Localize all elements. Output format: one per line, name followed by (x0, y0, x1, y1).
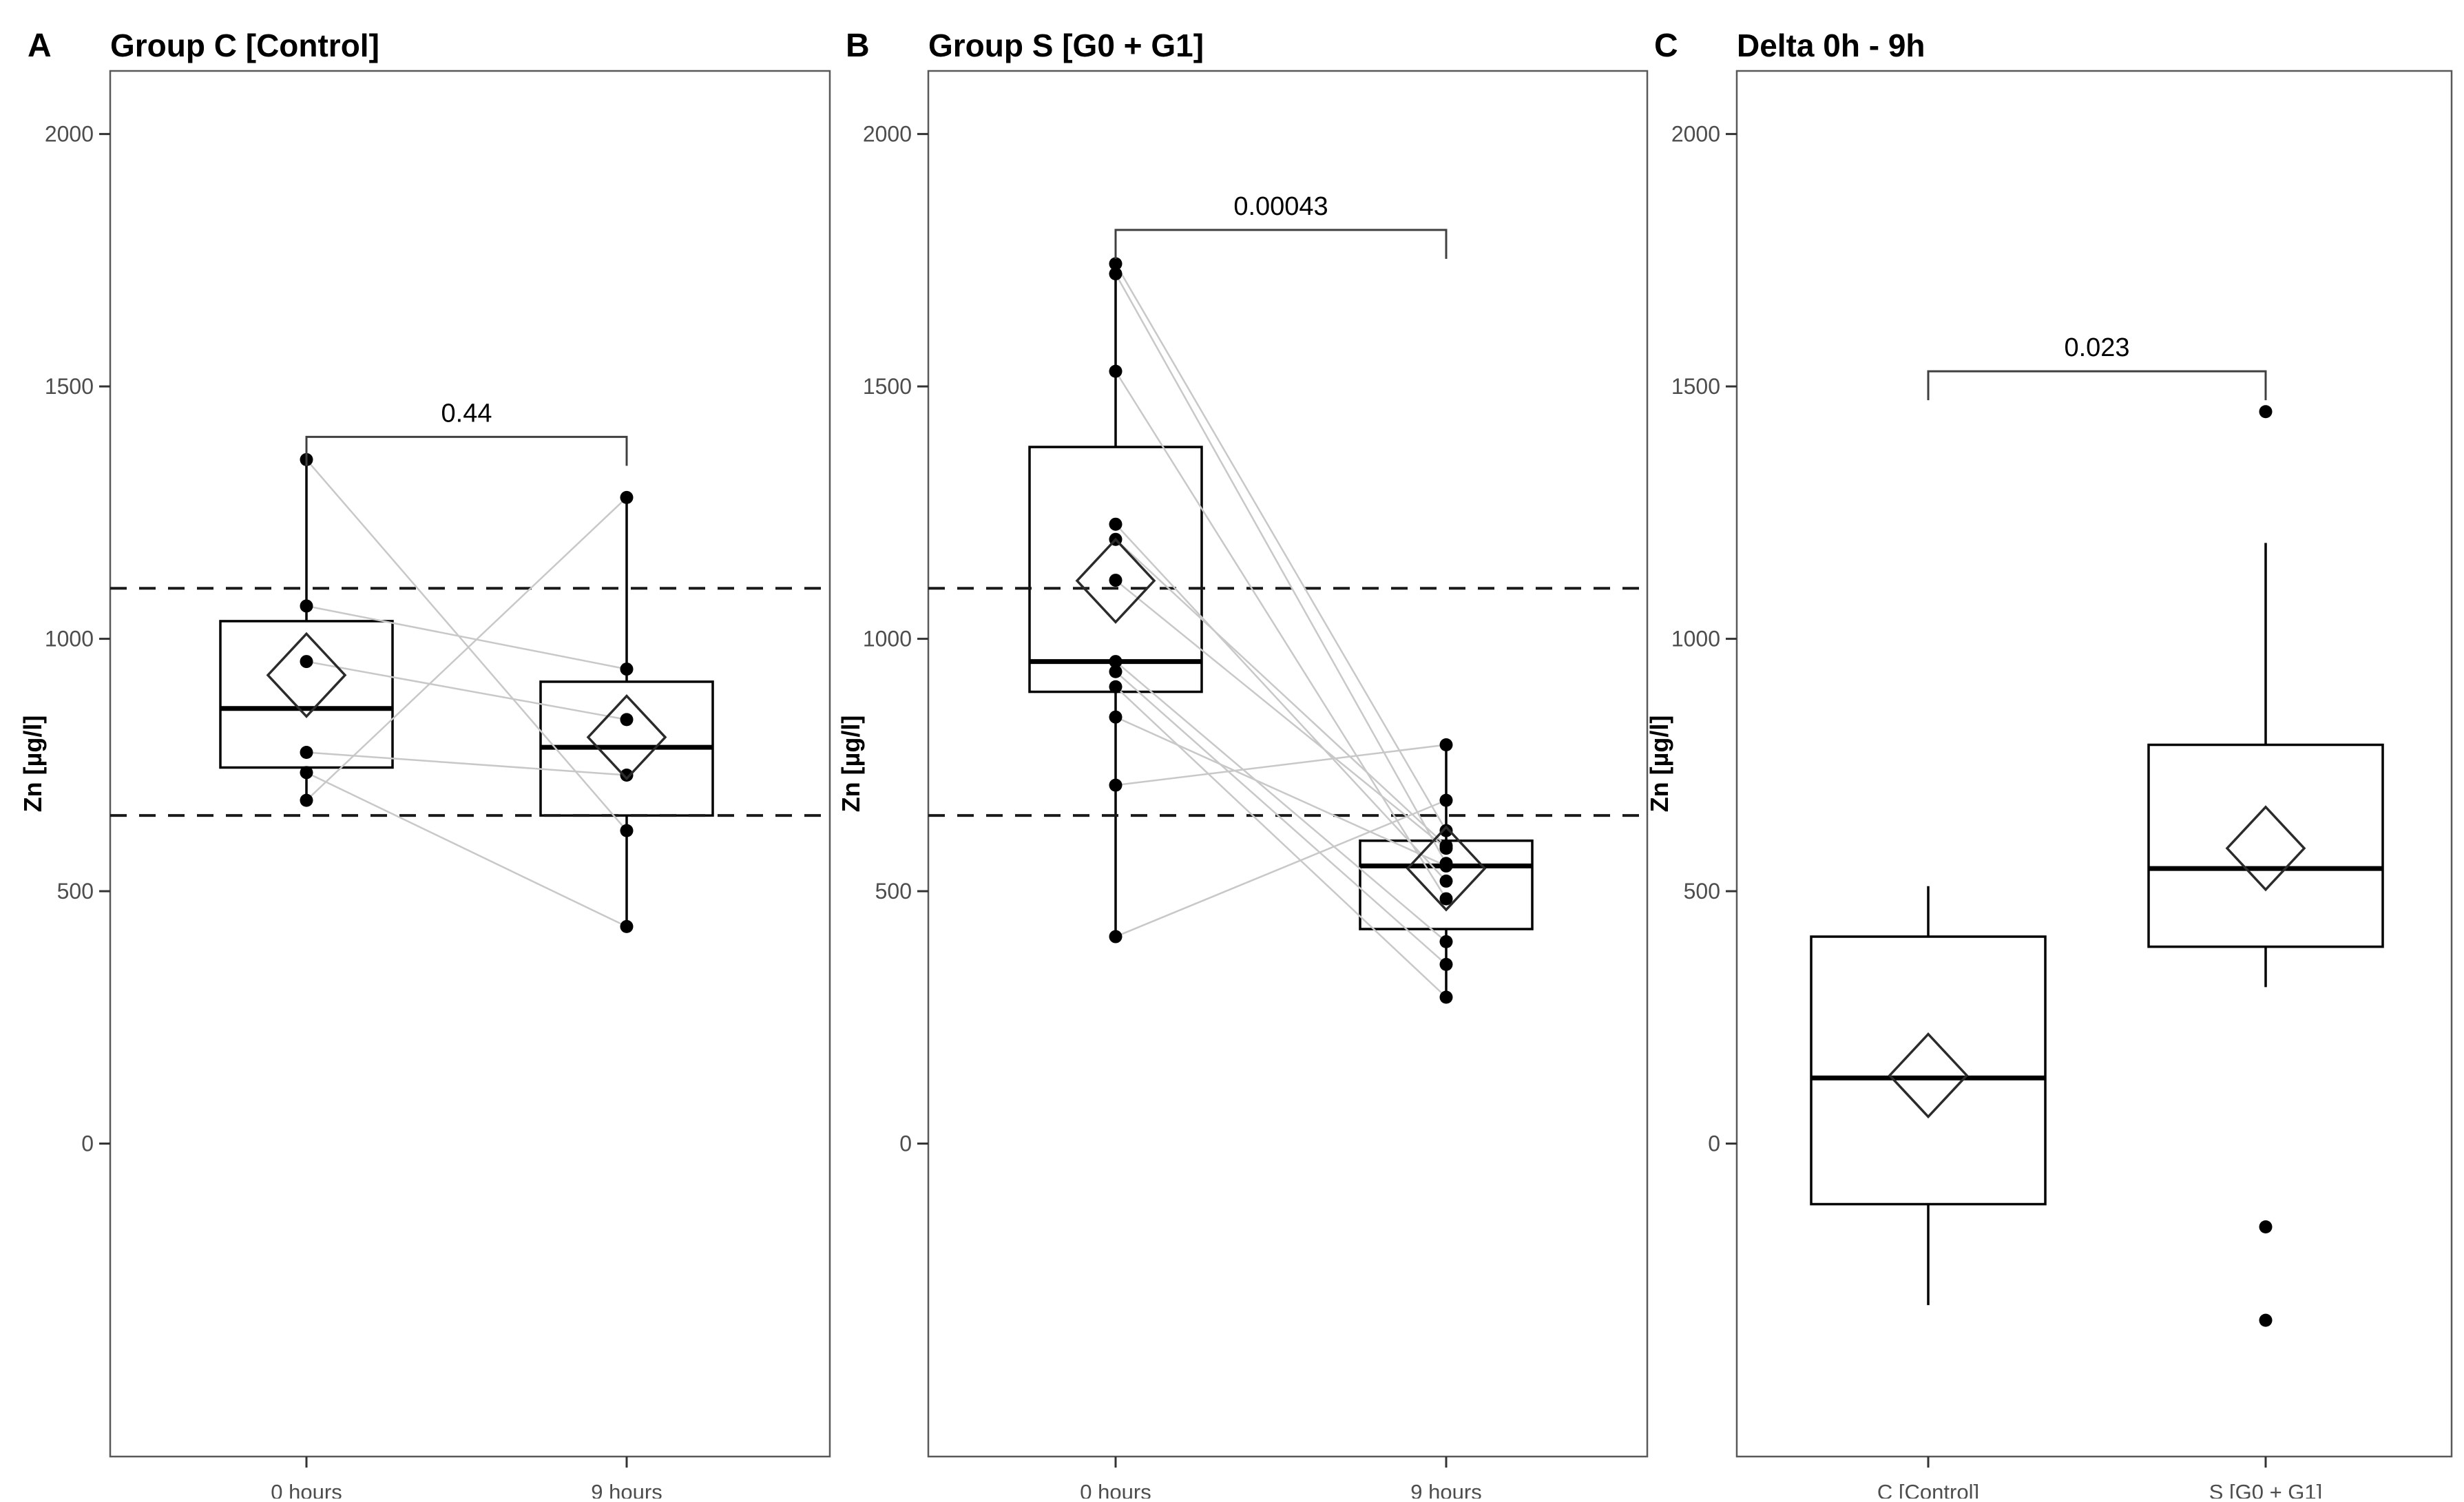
y-tick-label: 2000 (1671, 122, 1720, 147)
data-point (1109, 665, 1123, 678)
x-tick-label: 9 hours (1410, 1480, 1481, 1499)
panel-C: 0500100015002000Zn [µg/l]CDelta 0h - 9h0… (1645, 28, 2452, 1499)
y-tick-label: 1500 (45, 374, 94, 399)
data-point (620, 713, 634, 726)
x-tick-label: C [Control] (1877, 1480, 1979, 1499)
panel-letter: C (1654, 28, 1678, 64)
y-tick-label: 1000 (45, 627, 94, 651)
panel-title: Group S [G0 + G1] (928, 28, 1204, 63)
data-point (1440, 794, 1453, 807)
y-tick-label: 1500 (863, 374, 912, 399)
y-tick-label: 1500 (1671, 374, 1720, 399)
data-point (620, 663, 634, 676)
data-point (1109, 518, 1123, 531)
box (1811, 937, 2045, 1204)
y-tick-label: 0 (81, 1131, 94, 1156)
pvalue-label: 0.44 (441, 399, 492, 428)
data-point (1109, 930, 1123, 943)
data-point (1440, 990, 1453, 1003)
data-point (300, 746, 313, 759)
data-point (1109, 711, 1123, 724)
panel-A: 0500100015002000Zn [µg/l]AGroup C [Contr… (19, 28, 830, 1499)
data-point (620, 920, 634, 933)
zinc-boxplot-figure: 0500100015002000Zn [µg/l]AGroup C [Contr… (0, 0, 2464, 1499)
y-axis-title: Zn [µg/l] (19, 716, 47, 813)
data-point (1440, 842, 1453, 855)
data-point (1440, 958, 1453, 971)
data-point (1109, 365, 1123, 378)
panel-letter: B (846, 28, 870, 64)
data-point (1440, 875, 1453, 888)
data-point (1440, 859, 1453, 873)
panel-title: Delta 0h - 9h (1737, 28, 1925, 63)
x-tick-label: 0 hours (271, 1480, 342, 1499)
data-point (1109, 574, 1123, 587)
data-point (1440, 738, 1453, 751)
panel-title: Group C [Control] (110, 28, 379, 63)
panel-letter: A (28, 28, 52, 64)
outlier-point (2259, 1220, 2273, 1233)
data-point (1109, 779, 1123, 792)
data-point (620, 491, 634, 504)
pvalue-label: 0.00043 (1233, 192, 1328, 221)
data-point (1440, 935, 1453, 948)
data-point (300, 766, 313, 779)
y-tick-label: 500 (57, 879, 94, 904)
box (2149, 745, 2383, 947)
x-tick-label: S [G0 + G1] (2209, 1480, 2323, 1499)
data-point (300, 599, 313, 612)
y-tick-label: 0 (899, 1131, 912, 1156)
data-point (300, 655, 313, 668)
y-tick-label: 1000 (1671, 627, 1720, 651)
y-tick-label: 0 (1708, 1131, 1720, 1156)
y-tick-label: 500 (875, 879, 912, 904)
y-axis-title: Zn [µg/l] (837, 716, 865, 813)
x-tick-label: 0 hours (1080, 1480, 1151, 1499)
y-tick-label: 500 (1684, 879, 1720, 904)
pvalue-label: 0.023 (2064, 333, 2129, 362)
boxplot-svg: 0500100015002000Zn [µg/l]AGroup C [Contr… (0, 0, 2464, 1499)
y-axis-title: Zn [µg/l] (1645, 716, 1673, 813)
data-point (620, 824, 634, 837)
data-point (300, 794, 313, 807)
outlier-point (2259, 405, 2273, 418)
box (220, 621, 393, 768)
y-tick-label: 1000 (863, 627, 912, 651)
x-tick-label: 9 hours (591, 1480, 662, 1499)
panel-B: 0500100015002000Zn [µg/l]BGroup S [G0 + … (837, 28, 1647, 1499)
y-tick-label: 2000 (863, 122, 912, 147)
y-tick-label: 2000 (45, 122, 94, 147)
data-point (1109, 267, 1123, 280)
outlier-point (2259, 1314, 2273, 1327)
data-point (1109, 680, 1123, 693)
